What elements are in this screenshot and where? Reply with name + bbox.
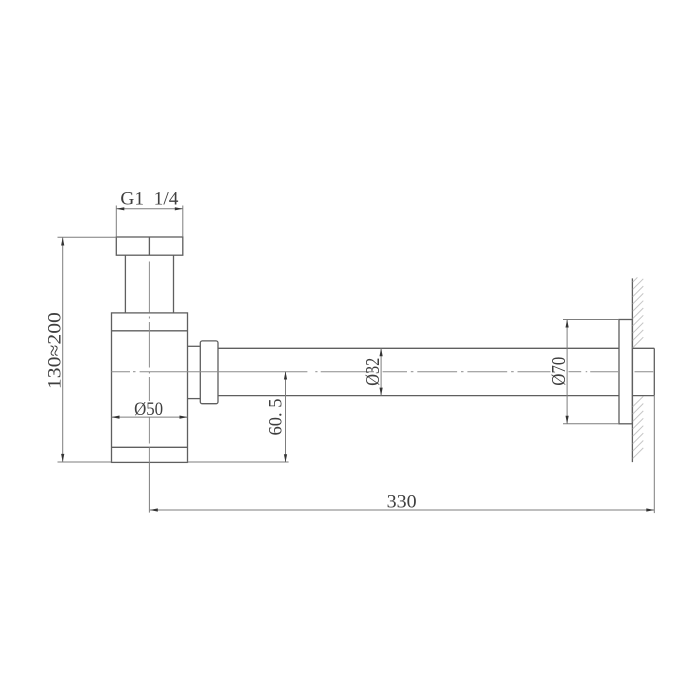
svg-text:G1 1/4: G1 1/4 [120,189,179,210]
svg-text:Ø32: Ø32 [362,358,384,386]
svg-text:Ø50: Ø50 [134,399,163,420]
svg-text:330: 330 [387,492,417,513]
svg-text:60. 5: 60. 5 [265,399,286,436]
svg-text:130≈200: 130≈200 [45,312,66,389]
svg-text:Ø70: Ø70 [548,357,570,386]
